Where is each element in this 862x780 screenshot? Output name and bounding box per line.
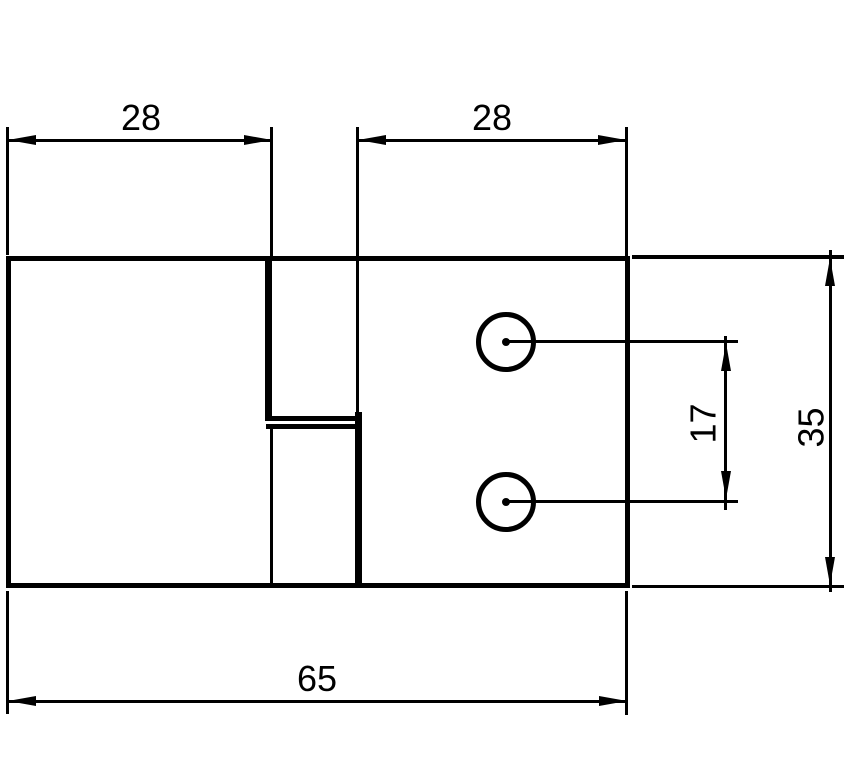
dim-28-right-value: 28 — [472, 97, 512, 138]
dim-35-arrowhead-up — [825, 258, 835, 286]
slot-right-lower-edge — [355, 412, 362, 585]
dim-17-label: 17 — [685, 384, 722, 464]
dim-28-right-ext-line-right — [625, 127, 628, 256]
dim-28-left-line — [8, 139, 272, 142]
dim-35-arrowhead-down — [825, 557, 835, 585]
dim-17-arrowhead-down — [721, 471, 731, 499]
dim-35-ext-line-top — [632, 255, 844, 259]
dim-17-leader-upper — [506, 340, 738, 343]
dim-65-label: 65 — [277, 660, 357, 697]
slot-step-lower-edge — [266, 424, 362, 429]
slot-left-upper-edge — [265, 256, 272, 421]
part-edge-top — [6, 256, 630, 261]
dim-28-right-arrowhead-left — [358, 135, 386, 145]
slot-right-upper-edge — [356, 256, 359, 416]
slot-step-upper-edge — [266, 416, 362, 421]
slot-left-lower-edge — [270, 429, 273, 585]
dim-35-ext-line-bottom — [632, 585, 844, 588]
dim-28-left-arrowhead-right — [244, 135, 272, 145]
part-edge-left — [6, 256, 11, 588]
dim-17-leader-lower — [506, 500, 738, 503]
dim-35-value: 35 — [791, 407, 832, 447]
dim-65-line — [8, 700, 627, 703]
dim-28-right-label: 28 — [452, 99, 532, 136]
technical-drawing-canvas: 28 28 17 35 65 — [0, 0, 862, 780]
dim-28-right-arrowhead-right — [598, 135, 626, 145]
dim-65-value: 65 — [297, 658, 337, 699]
dim-28-left-label: 28 — [101, 99, 181, 136]
dim-65-arrowhead-right — [599, 696, 627, 706]
part-edge-bottom — [6, 583, 630, 588]
dim-28-left-value: 28 — [121, 97, 161, 138]
part-edge-right — [625, 256, 630, 588]
dim-28-right-line — [358, 139, 626, 142]
dim-35-label: 35 — [793, 388, 830, 468]
dim-28-right-ext-line-left — [356, 127, 359, 256]
dim-28-left-ext-line-left — [6, 127, 9, 255]
dim-28-left-ext-line-right — [270, 127, 273, 256]
dim-28-left-arrowhead-left — [8, 135, 36, 145]
dim-65-arrowhead-left — [8, 696, 36, 706]
dim-17-value: 17 — [683, 403, 724, 443]
dim-17-arrowhead-up — [721, 343, 731, 371]
